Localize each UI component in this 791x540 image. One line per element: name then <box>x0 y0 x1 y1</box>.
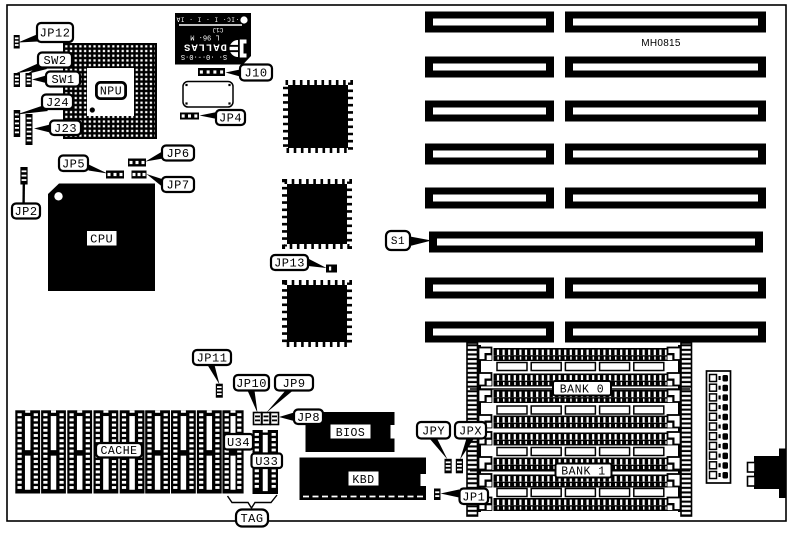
svg-text:JP10: JP10 <box>236 377 267 391</box>
svg-text:JP13: JP13 <box>274 257 305 271</box>
svg-text:CACHE: CACHE <box>100 445 137 458</box>
svg-text:TAG: TAG <box>240 512 263 526</box>
svg-text:U34: U34 <box>227 436 250 450</box>
svg-text:JP4: JP4 <box>219 112 242 126</box>
svg-text:JPY: JPY <box>422 424 445 438</box>
svg-text:JP6: JP6 <box>166 147 189 161</box>
svg-text:BIOS: BIOS <box>336 427 366 440</box>
svg-text:C1J: C1J <box>213 26 224 33</box>
svg-text:BANK 0: BANK 0 <box>560 384 604 397</box>
svg-text:JP11: JP11 <box>197 352 228 366</box>
svg-text:JP7: JP7 <box>166 179 189 193</box>
svg-text:JP2: JP2 <box>14 205 37 219</box>
svg-text:SW2: SW2 <box>43 54 66 68</box>
svg-text:J10: J10 <box>244 67 267 81</box>
svg-text:S· ·0·-·0·S: S· ·0·-·0·S <box>181 52 227 60</box>
svg-text:J23: J23 <box>54 122 77 136</box>
svg-text:JP8: JP8 <box>297 411 320 425</box>
svg-text:JPX: JPX <box>459 424 482 438</box>
svg-text:CPU: CPU <box>90 233 113 247</box>
svg-text:JP12: JP12 <box>40 27 71 41</box>
svg-text:MH0815: MH0815 <box>641 38 681 49</box>
svg-text:JP1: JP1 <box>462 490 485 504</box>
svg-text:J24: J24 <box>46 96 69 110</box>
svg-text:BANK 1: BANK 1 <box>561 466 605 479</box>
svg-text:·IC· I · I · IA·: ·IC· I · I · IA· <box>172 15 239 22</box>
svg-text:SW1: SW1 <box>51 73 74 87</box>
svg-text:NPU: NPU <box>100 86 122 99</box>
svg-text:JP5: JP5 <box>62 157 85 171</box>
svg-text:DALLAS: DALLAS <box>183 41 227 53</box>
svg-text:L 96· M: L 96· M <box>190 33 219 41</box>
svg-text:KBD: KBD <box>352 474 374 487</box>
svg-text:U33: U33 <box>255 455 278 469</box>
svg-text:S1: S1 <box>391 236 405 248</box>
svg-text:JP9: JP9 <box>282 377 305 391</box>
